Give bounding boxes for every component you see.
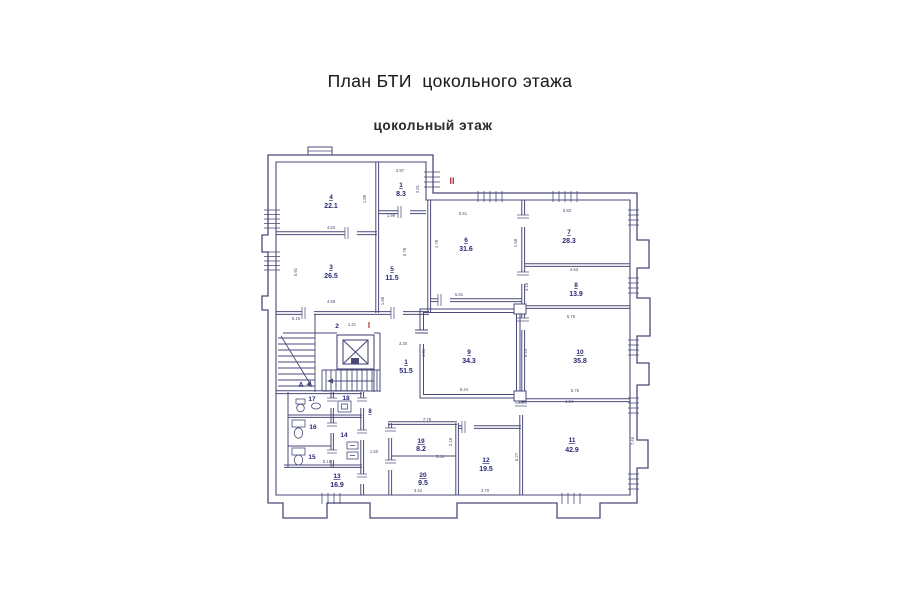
- room-label-17: 17: [308, 396, 316, 403]
- dimension: 7.46: [630, 436, 635, 445]
- room-label-14: 14: [340, 432, 348, 439]
- elevator-shaft: [337, 335, 374, 369]
- scanned-floor-plan-page: { "page": { "title": "План БТИ цокольног…: [0, 0, 900, 604]
- room-number: 6: [464, 237, 468, 244]
- floor-plan-drawing: 18.3 2 326.5 422.1 511.5 631.6 728.3 813…: [0, 0, 900, 604]
- window-hatches: [264, 172, 639, 504]
- dimension: 1.99: [387, 213, 396, 218]
- room-area: 13.9: [569, 291, 583, 298]
- room-area: 11.5: [385, 275, 398, 282]
- dimension: 5.16: [323, 459, 332, 464]
- room-area: 16.9: [330, 482, 344, 489]
- room-label-13: 1316.9: [330, 473, 344, 489]
- room-label-18: 18: [342, 395, 350, 402]
- room-label-10: 1035.8: [573, 349, 587, 365]
- room-area: 8.3: [396, 191, 406, 198]
- dimension: 3.30: [399, 341, 408, 346]
- room-area: 34.3: [462, 358, 476, 365]
- section-label-ii: II: [449, 176, 454, 186]
- room-area: 8.2: [416, 446, 426, 453]
- boiler-room18: [338, 401, 351, 412]
- room-label-15: 15: [308, 454, 316, 461]
- toilet-room16: [292, 420, 305, 438]
- room-area: 19.5: [479, 466, 493, 473]
- room-number: 7: [567, 229, 571, 236]
- door-marks: [302, 206, 529, 477]
- room-area: 35.8: [573, 358, 587, 365]
- window-left-2: [264, 252, 280, 270]
- room-area: 51.5: [399, 368, 413, 375]
- stairwell-letter: А: [298, 382, 303, 389]
- room-area: 22.1: [324, 203, 338, 210]
- room-label-3: 326.5: [324, 264, 338, 280]
- room-number: 1: [404, 359, 408, 366]
- dimension: 4.63: [570, 267, 579, 272]
- room-label-2: 2: [335, 323, 339, 330]
- plumbing-fixtures: [292, 399, 358, 465]
- dimension: 3.70: [481, 488, 490, 493]
- room-number: 3: [329, 264, 333, 271]
- heater-room14-a: [347, 442, 358, 449]
- heater-room14-b: [347, 452, 358, 459]
- dimension: 4.34: [565, 399, 574, 404]
- dimension: 4.58: [327, 299, 336, 304]
- room-number: 13: [333, 473, 341, 480]
- dimension: 2.18: [448, 437, 453, 446]
- dimension: 5.75: [571, 388, 580, 393]
- dimension: 1.21: [348, 322, 357, 327]
- room-number: 15: [308, 454, 316, 461]
- room-area: 31.6: [459, 246, 473, 253]
- dimension: 5.44: [460, 387, 469, 392]
- room-label-12: 1219.5: [479, 457, 493, 473]
- room-number: 12: [482, 457, 490, 464]
- room-number: 20: [419, 472, 427, 479]
- room-label-5: 511.5: [385, 266, 398, 282]
- room-number: 9: [467, 349, 471, 356]
- sink-room17: [296, 399, 305, 412]
- section-label-i: I: [368, 321, 370, 330]
- room-number: 11: [569, 437, 576, 444]
- staircase-exit: [322, 370, 380, 391]
- room-number: 5: [390, 266, 394, 273]
- dimension: 2.97: [396, 168, 405, 173]
- dimension: 3.44: [436, 454, 445, 459]
- dimension: 4.84: [327, 225, 336, 230]
- dimension: 7.76: [423, 417, 432, 422]
- small-label-8: 8: [368, 409, 372, 415]
- dimension: 5.91: [293, 267, 298, 276]
- room-label-19: 198.2: [416, 438, 426, 453]
- room-number: 2: [335, 323, 339, 330]
- interior-walls: [276, 162, 630, 495]
- dimension-labels: 2.97 2.81 4.84 1.88 1.99 5.78 1.78 5.51 …: [292, 168, 635, 493]
- dimension: 4.31: [421, 348, 426, 357]
- dimension: 3.42: [414, 488, 423, 493]
- room-number: 4: [329, 194, 333, 201]
- dimension: 1.88: [380, 296, 385, 305]
- dimension: 1.78: [434, 239, 439, 248]
- dimension: 3.18: [524, 282, 529, 291]
- room-label-6: 631.6: [459, 237, 473, 253]
- room-area: 9.5: [418, 480, 428, 487]
- room-number: 8: [574, 282, 578, 289]
- dimension: 1.50: [370, 449, 379, 454]
- dimension: 1.58: [513, 238, 518, 247]
- dimension: 1.88: [362, 194, 367, 203]
- dimension: 2.81: [415, 184, 420, 193]
- room-label-9: 934.3: [462, 349, 476, 365]
- dimension: 5.27: [514, 452, 519, 461]
- room-label-8: 813.9: [569, 282, 583, 298]
- basin-room17: [312, 403, 321, 409]
- dimension: 5.51: [459, 211, 468, 216]
- room-label-11: 1142.9: [565, 437, 579, 454]
- dimension: 5.78: [402, 247, 407, 256]
- room-number: 10: [576, 349, 584, 356]
- room-area: 26.5: [324, 273, 338, 280]
- room-number: 16: [309, 424, 317, 431]
- dimension: 5.83: [563, 208, 572, 213]
- room-label-4: 422.1: [324, 194, 338, 210]
- room-number: 17: [308, 396, 316, 403]
- room-label-corridor: 151.5: [399, 359, 413, 375]
- room-label-7: 728.3: [562, 229, 576, 245]
- dimension: 5.81: [455, 292, 464, 297]
- room-number: 18: [342, 395, 350, 402]
- room-label-20: 209.5: [418, 472, 428, 487]
- room-number: 19: [417, 438, 425, 445]
- room-area: 42.9: [565, 447, 579, 454]
- toilet-room15: [292, 448, 305, 465]
- room-area: 28.3: [562, 238, 576, 245]
- dimension: 5.76: [567, 314, 576, 319]
- room-number: 1: [399, 182, 403, 189]
- dimension: 5.16: [292, 316, 301, 321]
- room-label-1: 18.3: [396, 182, 406, 198]
- room-label-16: 16: [309, 424, 317, 431]
- window-left-1: [264, 210, 280, 228]
- dimension: 6.23: [523, 348, 528, 357]
- staircase-a: [278, 333, 315, 392]
- room-number: 14: [340, 432, 348, 439]
